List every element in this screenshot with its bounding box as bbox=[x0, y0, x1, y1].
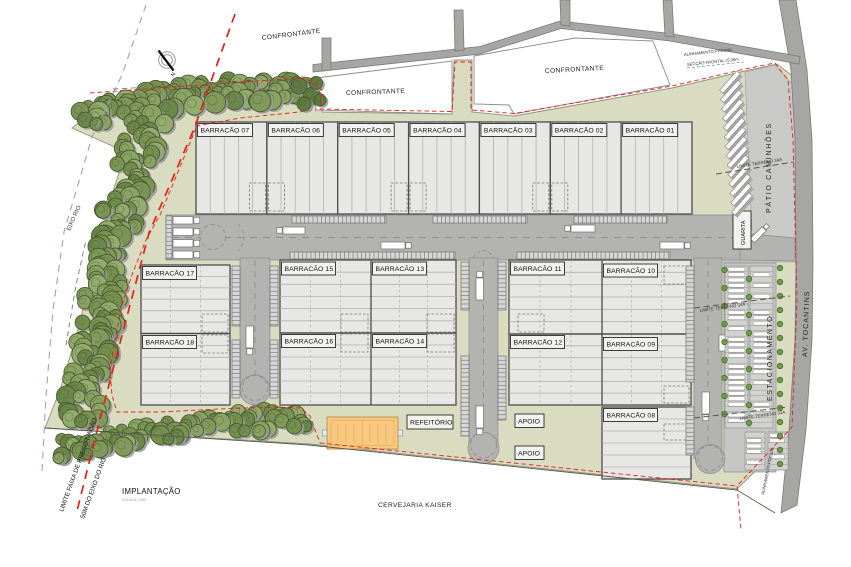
svg-text:ESCALA 1:500: ESCALA 1:500 bbox=[122, 498, 146, 502]
svg-text:IMPLANTAÇÃO: IMPLANTAÇÃO bbox=[122, 487, 181, 496]
svg-text:BARRACÃO 02: BARRACÃO 02 bbox=[555, 126, 604, 135]
svg-text:50M DO EIXO DO RIO: 50M DO EIXO DO RIO bbox=[79, 457, 108, 520]
svg-text:N: N bbox=[170, 71, 177, 78]
svg-text:BARRACÃO 03: BARRACÃO 03 bbox=[484, 126, 533, 135]
svg-text:BARRACÃO 05: BARRACÃO 05 bbox=[342, 126, 391, 135]
svg-text:BARRACÃO 18: BARRACÃO 18 bbox=[146, 338, 195, 347]
svg-text:CERVEJARIA KAISER: CERVEJARIA KAISER bbox=[378, 502, 452, 509]
svg-text:BARRACÃO 10: BARRACÃO 10 bbox=[607, 266, 656, 275]
svg-text:BARRACÃO 08: BARRACÃO 08 bbox=[607, 411, 656, 420]
svg-text:PÁTIO CAMINHÕES: PÁTIO CAMINHÕES bbox=[764, 122, 773, 213]
svg-text:BARRACÃO 15: BARRACÃO 15 bbox=[285, 264, 334, 273]
svg-text:APOIO: APOIO bbox=[518, 418, 540, 425]
svg-text:BARRACÃO 06: BARRACÃO 06 bbox=[271, 126, 320, 135]
svg-text:GUARITA: GUARITA bbox=[741, 220, 747, 245]
svg-text:REFEITÓRIO: REFEITÓRIO bbox=[410, 418, 453, 427]
svg-text:ALINHAMENTO PREDIAL: ALINHAMENTO PREDIAL bbox=[684, 47, 734, 57]
svg-text:EIXO RIO: EIXO RIO bbox=[66, 205, 82, 232]
svg-text:BARRACÃO 11: BARRACÃO 11 bbox=[514, 264, 562, 273]
svg-text:BARRACÃO 17: BARRACÃO 17 bbox=[146, 269, 195, 278]
svg-text:BARRACÃO 09: BARRACÃO 09 bbox=[607, 340, 656, 349]
svg-text:BARRACÃO 12: BARRACÃO 12 bbox=[514, 338, 563, 347]
svg-text:CONFRONTANTE: CONFRONTANTE bbox=[261, 28, 321, 42]
svg-text:BARRACÃO 01: BARRACÃO 01 bbox=[626, 126, 675, 135]
svg-text:BARRACÃO 14: BARRACÃO 14 bbox=[376, 337, 425, 346]
svg-text:BARRACÃO 16: BARRACÃO 16 bbox=[285, 337, 334, 346]
svg-text:BARRACÃO 04: BARRACÃO 04 bbox=[413, 126, 462, 135]
svg-text:APOIO: APOIO bbox=[518, 450, 540, 457]
svg-text:BARRACÃO 13: BARRACÃO 13 bbox=[376, 264, 425, 273]
svg-text:ESTACIONAMENTO: ESTACIONAMENTO bbox=[767, 315, 774, 401]
svg-text:BARRACÃO 07: BARRACÃO 07 bbox=[201, 126, 250, 135]
